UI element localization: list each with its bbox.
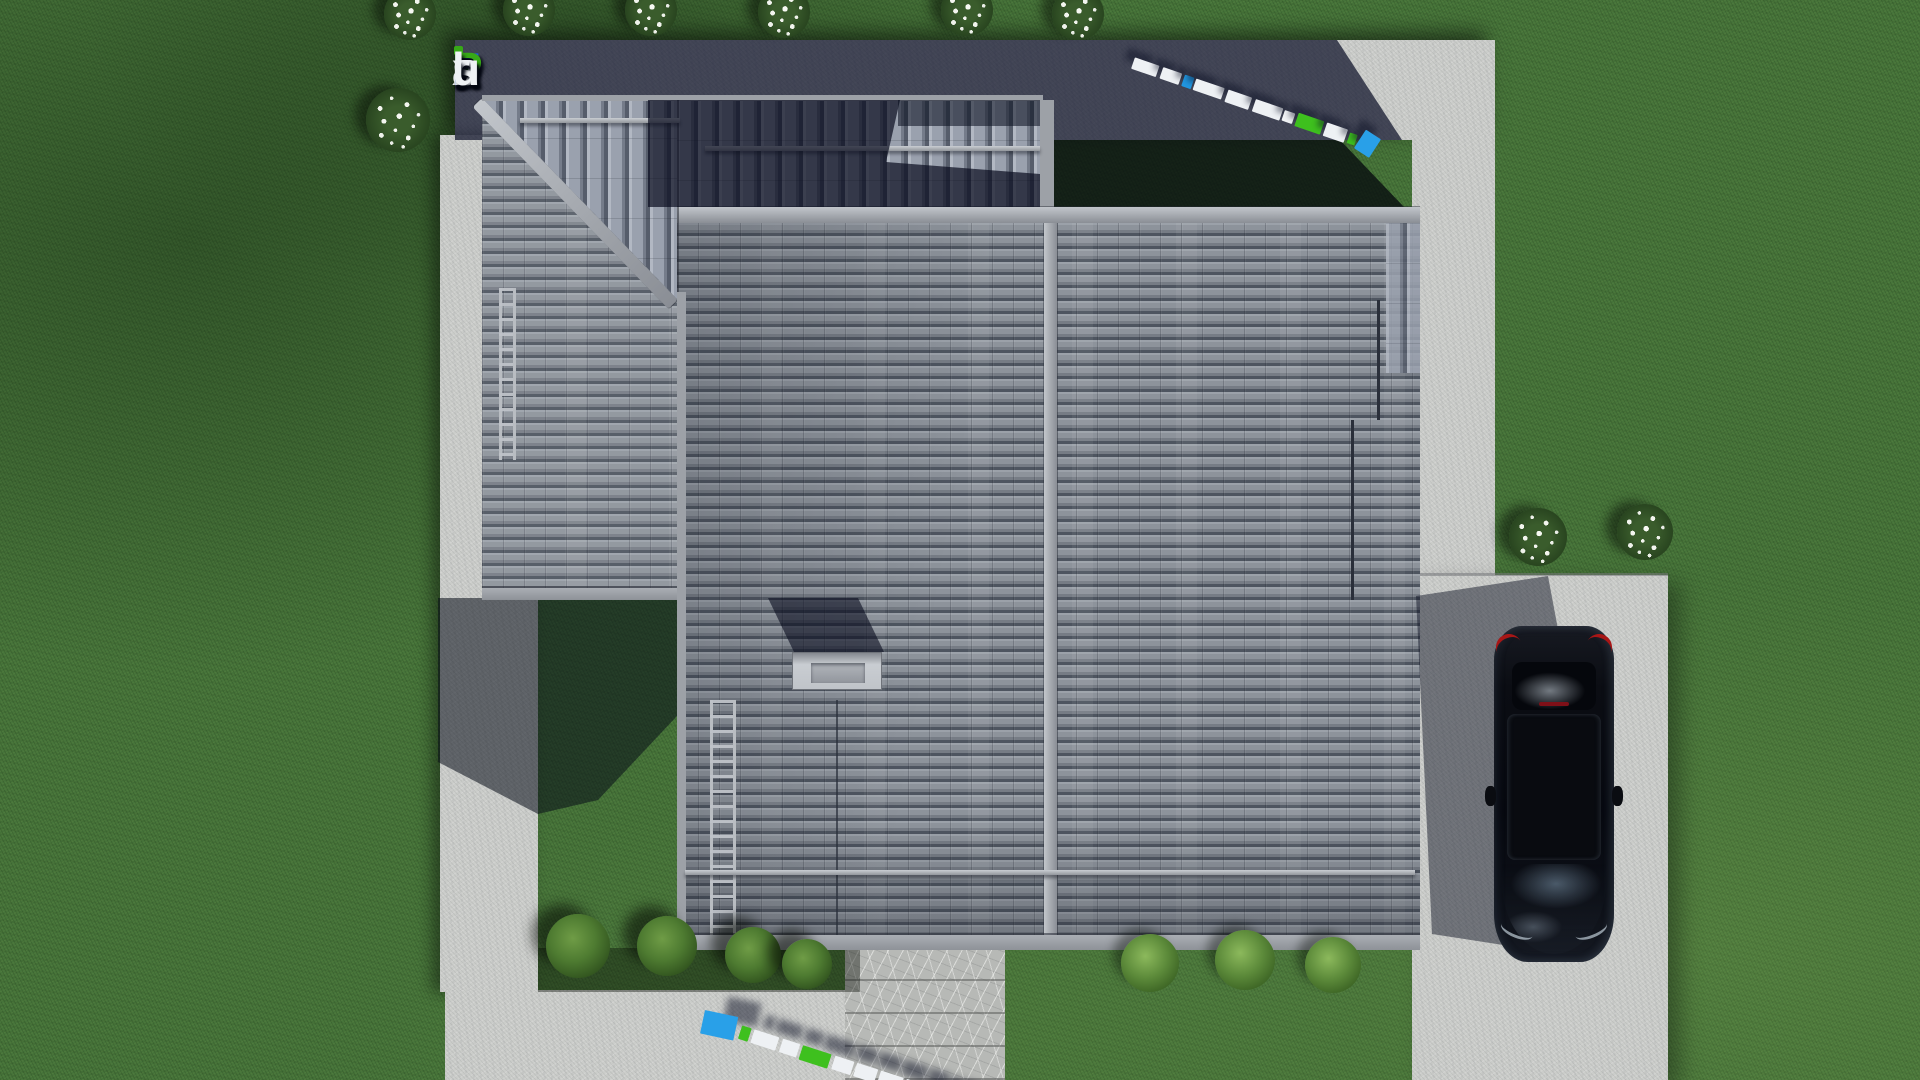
watermark-letter-block (1159, 67, 1182, 85)
watermark-letter-block (1193, 78, 1225, 99)
watermark-letter-block (853, 1063, 878, 1080)
roof-seam-pipe-center (836, 700, 838, 937)
roof-north-right-fascia (1040, 100, 1054, 223)
flower-bush (1509, 508, 1567, 566)
watermark-letter-block (1323, 122, 1348, 142)
shrub (782, 939, 832, 989)
stone-entry-pad (845, 948, 1005, 1080)
flower-bush (941, 0, 993, 36)
right-walkway (1412, 135, 1495, 577)
scene-render: FixPlans.ru (0, 0, 1920, 1080)
shrub (637, 916, 697, 976)
watermark-letter-block (738, 1025, 752, 1041)
flower-bush (1052, 0, 1104, 40)
shrub (1305, 937, 1361, 993)
driveway-seam (1412, 573, 1668, 576)
car-roof (1507, 714, 1601, 860)
car-hood (1502, 864, 1606, 954)
watermark-letter-block (779, 1039, 800, 1058)
shrub (1215, 930, 1275, 990)
flower-bush (625, 0, 677, 36)
roof-main-left-fascia (677, 292, 686, 937)
roof-drainpipe-right-upper (1377, 300, 1380, 420)
watermark-letter-block (1224, 89, 1252, 109)
shrub (1121, 934, 1179, 992)
snow-guard-lower (685, 870, 1415, 875)
roof-drainpipe-right-lower (1351, 420, 1354, 600)
logo-letter: u (452, 42, 481, 96)
car-mirror-right (1612, 786, 1623, 806)
snow-guard-upper-left (520, 118, 680, 123)
car (1494, 626, 1614, 962)
flower-bush (758, 0, 810, 38)
shrub (725, 927, 781, 983)
roof-ladder-main (710, 700, 736, 938)
flower-bush (1617, 504, 1673, 560)
flower-bush (503, 0, 555, 36)
watermark-letter-block (1131, 57, 1159, 77)
watermark-letter-block (750, 1029, 779, 1050)
roof-left-wing-eaves (482, 588, 677, 600)
flower-bush (384, 0, 436, 40)
roof-ladder-left-wing (499, 288, 516, 460)
watermark-letter-block (1294, 113, 1324, 135)
roof-top-fascia (482, 95, 1043, 101)
snow-guard-upper-mid (705, 146, 1040, 151)
roof-south-slope (677, 223, 1420, 937)
car-mirror-left (1485, 786, 1496, 806)
shrub (546, 914, 610, 978)
watermark-letter-block (1252, 99, 1284, 121)
watermark-letter-block (831, 1056, 854, 1075)
roof-valley-seam (677, 100, 679, 292)
watermark-letter-block (1282, 110, 1296, 124)
chimney-cap-inner (811, 663, 865, 683)
flower-bush-large (366, 88, 430, 152)
roof-right-edge-facet (1386, 223, 1420, 373)
roof-main-ridge-cap (677, 207, 1420, 223)
roof-north-slope (677, 100, 1043, 207)
car-brake-light (1539, 702, 1569, 706)
watermark-letter-block (877, 1070, 904, 1080)
watermark-letter-block (799, 1045, 832, 1069)
chimney (792, 652, 882, 690)
roof-vertical-ridge-cap (1044, 223, 1057, 937)
